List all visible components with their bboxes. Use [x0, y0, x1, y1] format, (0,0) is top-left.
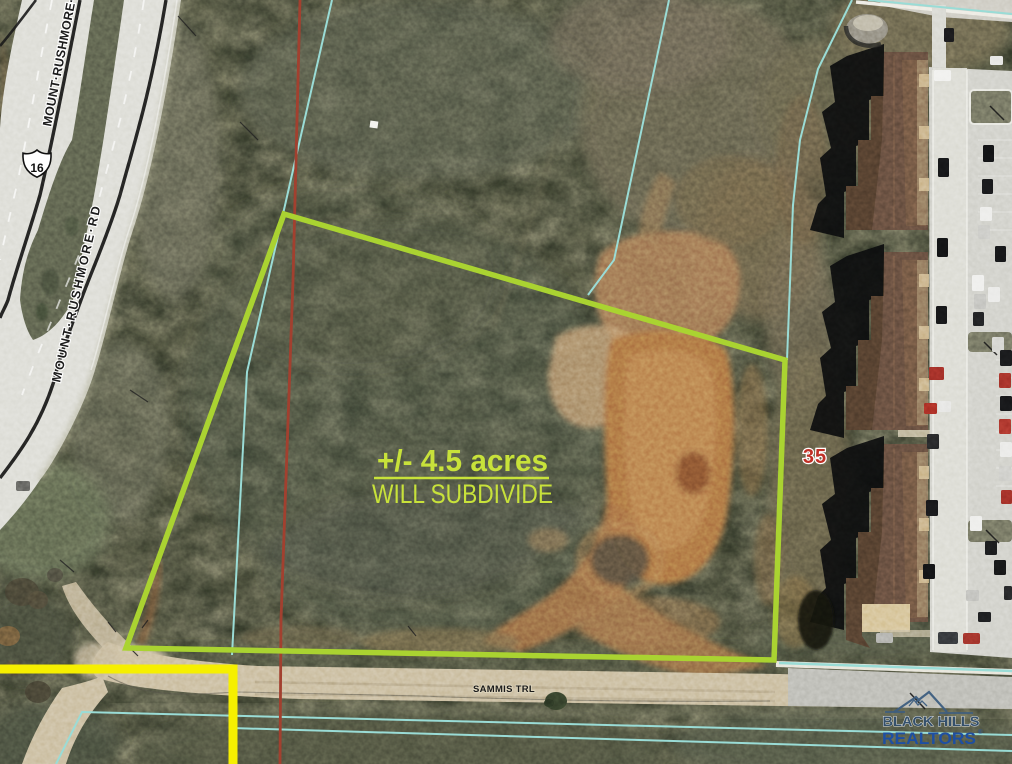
svg-text:REALTORS: REALTORS [882, 729, 976, 748]
svg-text:35: 35 [803, 446, 827, 468]
svg-text:SAMMIS TRL: SAMMIS TRL [473, 684, 535, 695]
svg-text:WILL SUBDIVIDE: WILL SUBDIVIDE [372, 479, 553, 509]
svg-text:BLACK HILLS: BLACK HILLS [883, 714, 980, 729]
svg-text:®: ® [978, 729, 983, 736]
svg-text:+/- 4.5 acres: +/- 4.5 acres [377, 443, 548, 478]
svg-text:16: 16 [30, 161, 44, 175]
